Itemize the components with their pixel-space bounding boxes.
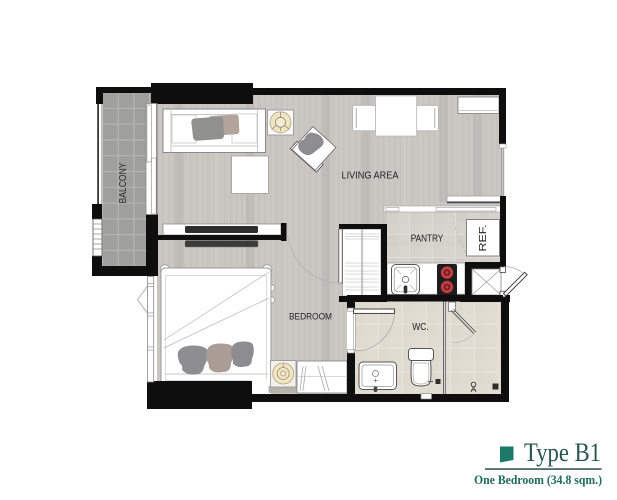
svg-text:WC.: WC. bbox=[412, 322, 429, 333]
svg-text:Type B1: Type B1 bbox=[524, 438, 601, 467]
svg-text:BALCONY: BALCONY bbox=[118, 162, 129, 203]
svg-text:One Bedroom (34.8 sqm.): One Bedroom (34.8 sqm.) bbox=[474, 473, 602, 487]
svg-text:LIVING AREA: LIVING AREA bbox=[342, 171, 399, 182]
svg-text:BEDROOM: BEDROOM bbox=[289, 312, 332, 323]
svg-text:REF.: REF. bbox=[478, 225, 489, 252]
svg-text:PANTRY: PANTRY bbox=[411, 234, 444, 245]
